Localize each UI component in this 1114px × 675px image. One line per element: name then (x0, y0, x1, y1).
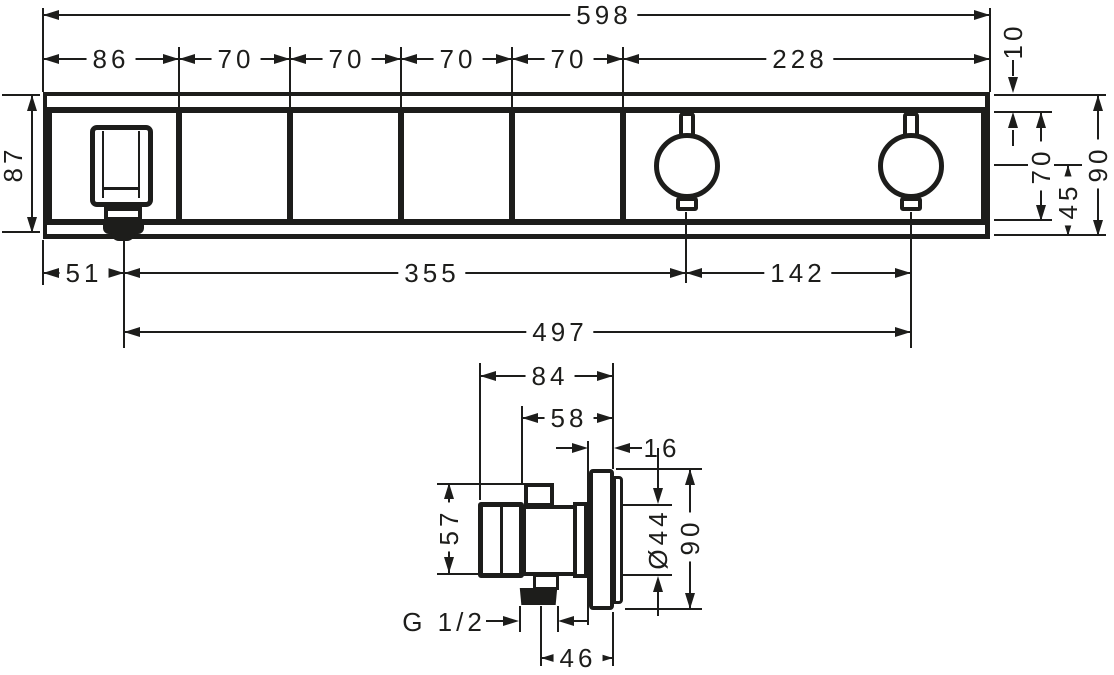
arrowhead (290, 54, 306, 64)
arrowhead (597, 413, 613, 423)
segment-divider (509, 109, 515, 220)
ext-line (42, 8, 44, 92)
knob1-tab (676, 197, 698, 211)
arrowhead (597, 371, 613, 381)
arrowhead (1093, 95, 1103, 111)
dim-label-spout-knob2: 497 (526, 319, 593, 345)
dim-label-total-width: 598 (570, 2, 637, 28)
ext-line (519, 606, 521, 632)
arrowhead (512, 54, 528, 64)
arrowhead (974, 54, 990, 64)
arrowhead (385, 54, 401, 64)
arrowhead (653, 488, 663, 504)
arrowhead (401, 54, 417, 64)
arrowhead (27, 217, 37, 233)
arrowhead (623, 54, 639, 64)
dim-label-outlet-wall: 46 (554, 645, 603, 671)
arrowhead (274, 54, 290, 64)
dim-label-height-right: 90 (1085, 140, 1111, 189)
ext-line (479, 363, 481, 500)
ext-line (623, 574, 672, 576)
dim-label-seg1: 86 (87, 46, 136, 72)
arrowhead (1036, 205, 1046, 221)
body-flange (573, 502, 588, 578)
plate-back-layer (613, 476, 623, 604)
valve-body (522, 505, 577, 576)
arrowhead (43, 268, 59, 278)
dim-label-spout-knob1: 355 (398, 260, 465, 286)
arrowhead (503, 616, 519, 626)
dim-line-dia (657, 592, 659, 616)
arrowhead (444, 557, 454, 573)
arrowhead (1036, 112, 1046, 128)
arrowhead (496, 54, 512, 64)
arrowhead (43, 54, 59, 64)
ext-line (623, 504, 672, 506)
thread-nipple (519, 588, 558, 605)
arrowhead (27, 95, 37, 111)
ext-line (42, 240, 44, 285)
arrowhead (895, 327, 911, 337)
arrowhead (43, 10, 59, 20)
arrowhead (607, 54, 623, 64)
arrowhead (1008, 77, 1018, 93)
nipple-step (533, 574, 559, 590)
handle-side-line (500, 506, 503, 574)
spout (103, 219, 144, 234)
arrowhead (179, 54, 195, 64)
dim-line-10 (1012, 60, 1014, 76)
dim-label-knob-diameter: Ø44 (645, 508, 671, 569)
dim-label-thread: G 1/2 (402, 609, 486, 635)
dim-label-center-bottom: 45 (1055, 177, 1081, 226)
dim-label-top-offset: 10 (1000, 23, 1026, 60)
arrowhead (653, 576, 663, 592)
ext-line (437, 573, 481, 575)
dim-label-height-left: 87 (0, 146, 26, 183)
ext-line (994, 234, 1106, 236)
dim-label-knob-spacing: 142 (764, 260, 831, 286)
arrowhead (1008, 112, 1018, 128)
arrowhead (685, 593, 695, 609)
segment-divider (287, 109, 293, 220)
arrowhead (685, 469, 695, 485)
body-step (524, 483, 554, 507)
knob2-tab (900, 197, 922, 211)
dim-line-16 (630, 447, 642, 449)
knob2-circle (878, 133, 944, 199)
knob1-circle (654, 133, 720, 199)
arrowhead (1093, 220, 1103, 236)
dim-label-depth-wall: 58 (545, 405, 594, 431)
arrowhead (572, 443, 588, 453)
dim-label-body-height: 70 (1028, 142, 1054, 191)
ext-line (994, 94, 1106, 96)
dim-label-seg5: 70 (545, 46, 594, 72)
ext-line (587, 441, 589, 625)
dim-line-dia (657, 448, 659, 488)
arrowhead (895, 268, 911, 278)
dim-line-497 (124, 331, 911, 333)
segment-divider (176, 109, 182, 220)
plate-side (589, 469, 614, 610)
handle-frame (90, 125, 153, 207)
dim-label-plate-height: 90 (677, 513, 703, 562)
dim-line-total (43, 14, 990, 16)
arrowhead (974, 10, 990, 20)
dim-line-10 (1012, 130, 1014, 146)
dim-label-depth-total: 84 (526, 363, 575, 389)
dim-label-seg6: 228 (766, 46, 833, 72)
arrowhead (124, 268, 140, 278)
arrowhead (444, 483, 454, 499)
ext-line (989, 8, 991, 92)
dimension-drawing: 598 86 70 70 70 70 228 51 355 142 (0, 0, 1114, 675)
arrowhead (558, 616, 574, 626)
dim-label-seg2: 70 (212, 46, 261, 72)
dim-label-seg3: 70 (323, 46, 372, 72)
arrowhead (163, 54, 179, 64)
arrowhead (670, 268, 686, 278)
arrowhead (480, 371, 496, 381)
dim-label-plate-thickness: 16 (644, 435, 681, 461)
plate-inner-frame (47, 107, 986, 225)
dim-label-body-height-side: 57 (436, 503, 462, 552)
handle-paddle-bottom (103, 187, 140, 190)
segment-divider (398, 109, 404, 220)
dim-line-16 (556, 447, 572, 449)
dim-line-87 (31, 95, 33, 233)
arrowhead (614, 443, 630, 453)
arrowhead (108, 268, 124, 278)
dim-label-spout-offset: 51 (60, 260, 109, 286)
arrowhead (686, 268, 702, 278)
arrowhead (522, 413, 538, 423)
dim-label-seg4: 70 (434, 46, 483, 72)
dim-line-g12 (574, 620, 588, 622)
arrowhead (124, 327, 140, 337)
segment-divider (620, 109, 626, 220)
